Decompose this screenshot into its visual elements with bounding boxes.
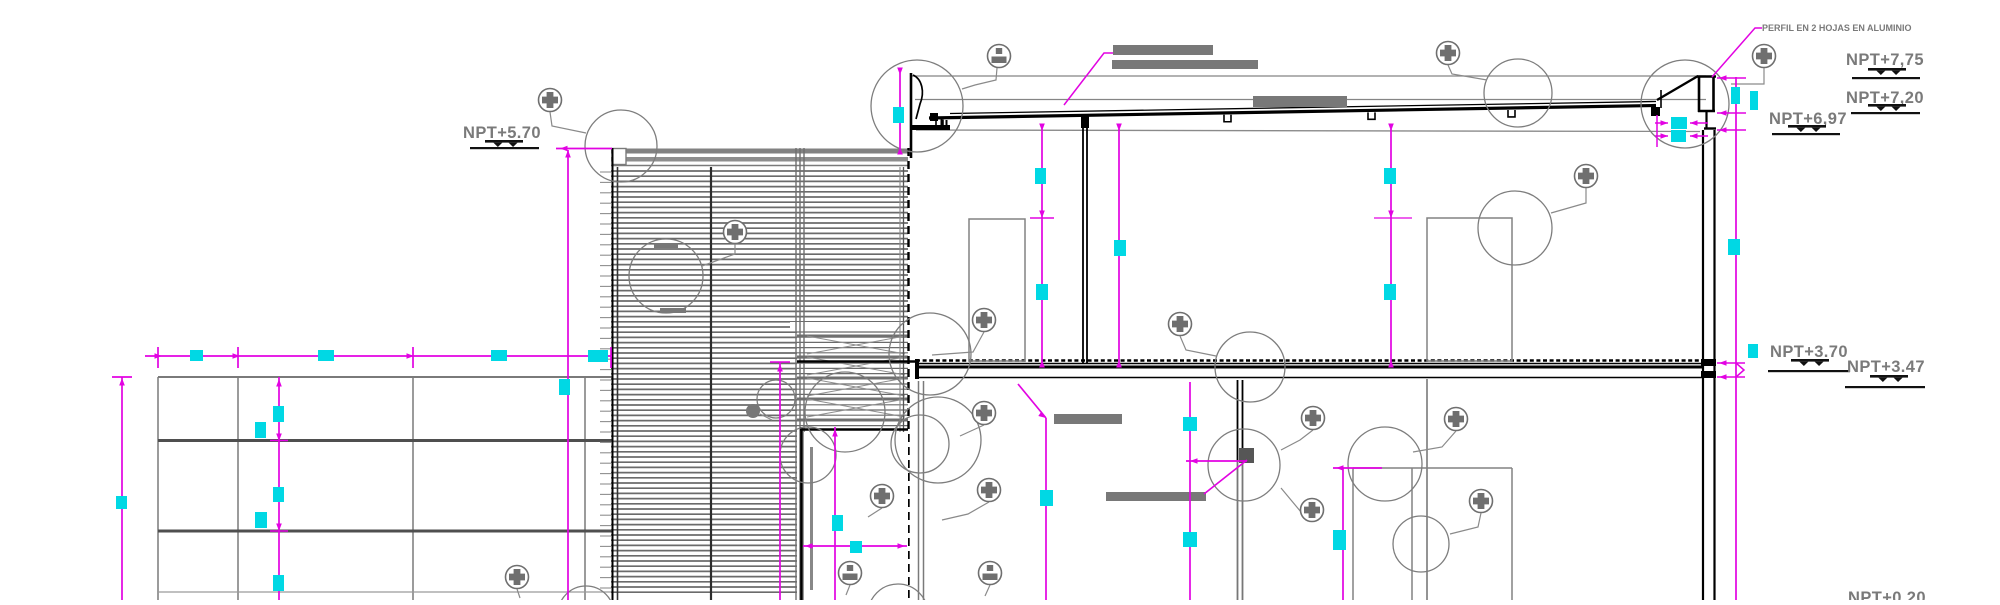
svg-text:PERFIL EN 2 HOJAS EN ALUMINIO: PERFIL EN 2 HOJAS EN ALUMINIO (1762, 23, 1912, 33)
svg-text:NPT+3.47: NPT+3.47 (1847, 358, 1925, 376)
svg-text:NPT+3.70: NPT+3.70 (1770, 343, 1848, 361)
svg-text:NPT+0.20: NPT+0.20 (1848, 589, 1926, 600)
svg-text:NPT+5.70: NPT+5.70 (463, 124, 541, 142)
svg-text:NPT+7,75: NPT+7,75 (1846, 51, 1924, 69)
